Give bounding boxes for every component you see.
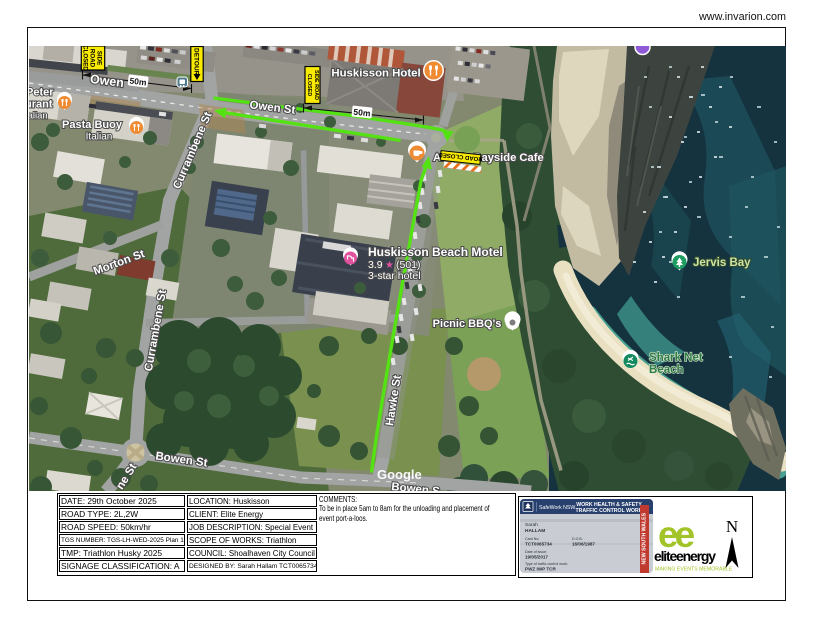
svg-text:Pasta Buoy: Pasta Buoy: [62, 119, 123, 131]
svg-text:Sarah: Sarah: [525, 522, 538, 528]
svg-text:HALLAM: HALLAM: [525, 528, 545, 534]
svg-text:eliteenergy: eliteenergy: [654, 548, 716, 564]
svg-text:WORK HEALTH & SAFETY: WORK HEALTH & SAFETY: [576, 502, 642, 508]
svg-text:3-star hotel: 3-star hotel: [368, 270, 421, 282]
svg-text:SIDE: SIDE: [95, 50, 102, 64]
svg-text:TCT0065734: TCT0065734: [525, 542, 552, 547]
svg-text:Picnic BBQ's: Picnic BBQ's: [432, 318, 501, 330]
svg-text:Huskisson Hotel: Huskisson Hotel: [331, 67, 420, 79]
svg-text:Peter: Peter: [29, 86, 54, 98]
svg-text:SIDE ROAD: SIDE ROAD: [313, 70, 319, 100]
svg-text:NEW SOUTH WALES: NEW SOUTH WALES: [642, 512, 648, 564]
svg-text:50m: 50m: [352, 106, 370, 118]
svg-text:Shark Net: Shark Net: [649, 352, 703, 364]
svg-text:N: N: [726, 517, 738, 536]
svg-text:DETOUR: DETOUR: [192, 48, 199, 76]
svg-text:PWZ IWP TCR: PWZ IWP TCR: [525, 567, 556, 572]
svg-text:50m: 50m: [129, 75, 148, 87]
svg-text:Jervis Bay: Jervis Bay: [693, 257, 751, 269]
svg-text:Date of issue:: Date of issue:: [525, 550, 547, 554]
svg-text:TRAFFIC CONTROL WORK: TRAFFIC CONTROL WORK: [575, 508, 642, 514]
svg-text:★: ★: [385, 260, 394, 271]
svg-text:Type of traffic control work:: Type of traffic control work:: [525, 562, 568, 566]
svg-text:Beach: Beach: [649, 364, 684, 376]
svg-text:Card No:: Card No:: [525, 537, 539, 541]
svg-text:Italian: Italian: [85, 131, 112, 142]
svg-text:urant: urant: [29, 98, 53, 110]
svg-text:Google: Google: [377, 467, 422, 482]
svg-text:CLOSED: CLOSED: [306, 73, 312, 96]
svg-text:CLOSED: CLOSED: [81, 46, 88, 71]
svg-text:talian: talian: [29, 110, 48, 121]
svg-text:16/06/1987: 16/06/1987: [572, 542, 595, 547]
svg-text:19/05/2017: 19/05/2017: [525, 555, 548, 560]
svg-text:ROAD: ROAD: [88, 48, 95, 67]
svg-text:Huskisson Beach Motel: Huskisson Beach Motel: [368, 245, 503, 259]
svg-text:SafeWork NSW: SafeWork NSW: [539, 505, 575, 511]
svg-text:D.O.B.: D.O.B.: [572, 537, 583, 541]
